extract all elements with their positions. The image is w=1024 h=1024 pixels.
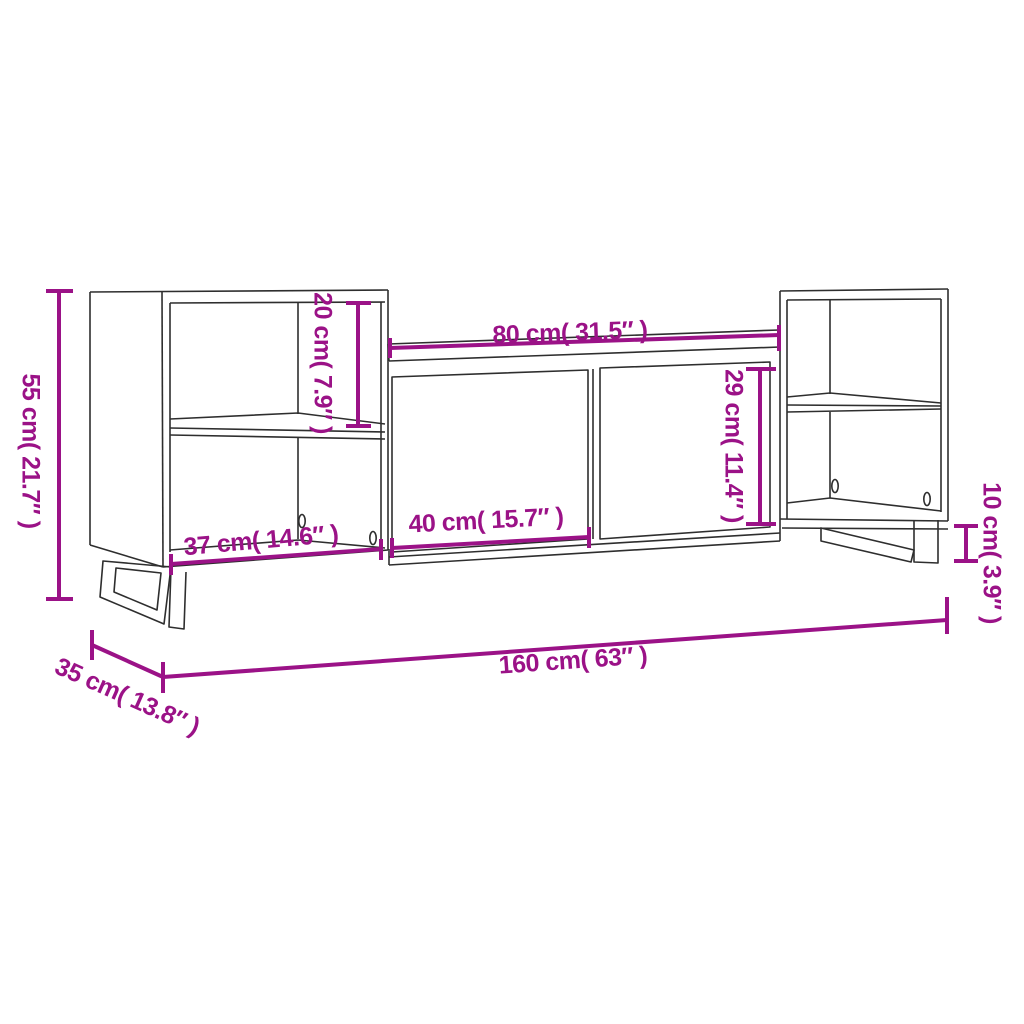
product-dimension-diagram: 55 cm( 21.7″ ) 20 cm( 7.9″ ) 80 cm( 31.5… xyxy=(0,0,1024,1024)
left-leg xyxy=(100,561,186,629)
dimension-label-leg-height: 10 cm( 3.9″ ) xyxy=(977,482,1006,624)
dimension-line-overall-width xyxy=(163,597,947,693)
right-cabinet-section xyxy=(780,289,948,541)
screw-hole xyxy=(370,532,376,545)
dimension-lines xyxy=(46,291,978,693)
screw-hole xyxy=(924,493,930,506)
dimension-line-leg-height xyxy=(954,526,978,561)
left-cabinet-section xyxy=(90,290,388,567)
dimension-label-center-top-width: 80 cm( 31.5″ ) xyxy=(492,316,648,350)
dimension-label-upper-shelf-height: 20 cm( 7.9″ ) xyxy=(308,292,337,434)
screw-hole xyxy=(832,480,838,493)
dimension-label-overall-height: 55 cm( 21.7″ ) xyxy=(16,373,45,528)
dimension-line-door-height xyxy=(746,369,776,524)
dimension-line-upper-shelf-height xyxy=(346,303,371,426)
dimension-line-overall-height xyxy=(46,291,73,599)
dimension-label-door-height: 29 cm( 11.4″ ) xyxy=(719,369,748,523)
right-leg xyxy=(821,520,938,563)
